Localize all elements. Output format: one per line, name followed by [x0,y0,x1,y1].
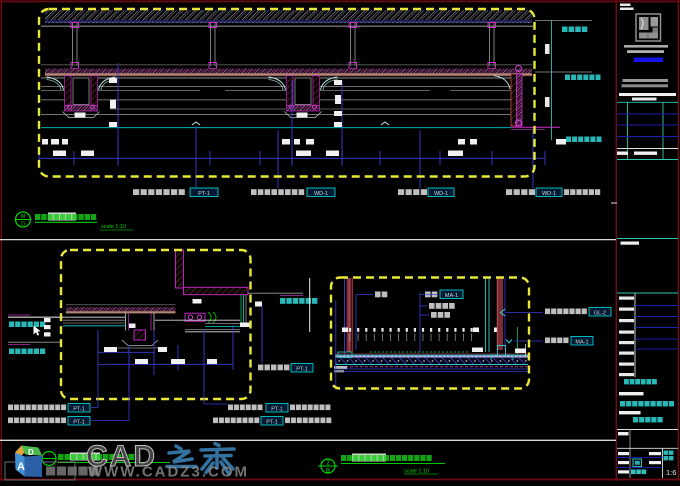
svg-text:WD-1: WD-1 [434,191,448,197]
svg-text:D: D [28,448,34,457]
svg-text:GL-2: GL-2 [594,310,606,316]
svg-text:A: A [17,461,25,473]
svg-text:PT-1: PT-1 [296,366,308,372]
svg-text:MA-1: MA-1 [445,293,458,299]
svg-text:D: D [21,222,25,228]
svg-text:PT-1: PT-1 [271,406,283,412]
svg-text:B: B [326,469,330,475]
svg-text:WD-1: WD-1 [314,191,328,197]
svg-text:MA-1: MA-1 [575,339,588,345]
svg-text:scale 1:10: scale 1:10 [101,224,126,230]
svg-text:PT-1: PT-1 [266,419,278,425]
svg-text:WD-1: WD-1 [542,191,556,197]
svg-text:WWW.CADZ3.COM: WWW.CADZ3.COM [88,464,249,481]
svg-text:PT-1: PT-1 [73,406,85,412]
svg-text:PT-1: PT-1 [198,191,210,197]
svg-text:1:6: 1:6 [666,468,676,477]
svg-text:M: M [21,214,25,220]
svg-text:PT-1: PT-1 [73,419,85,425]
